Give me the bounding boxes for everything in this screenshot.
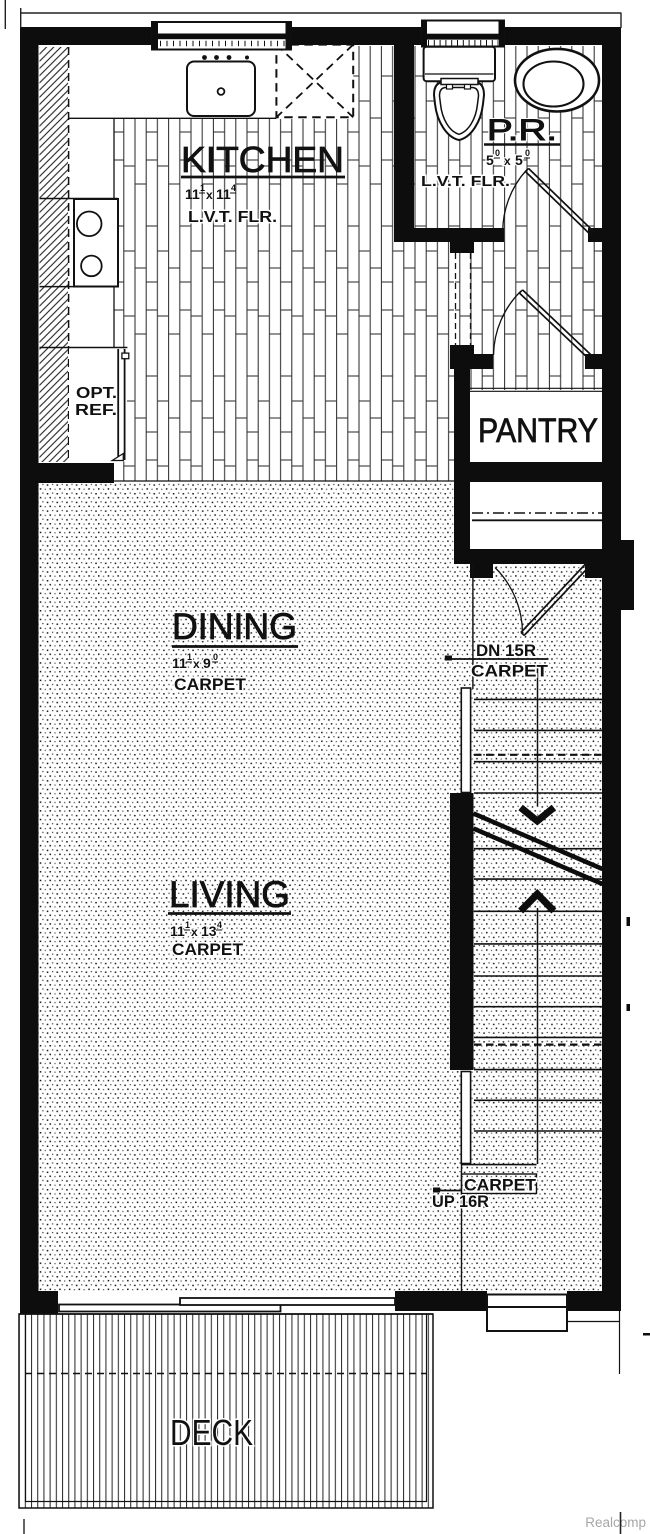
svg-text:x: x: [193, 657, 200, 671]
svg-text:1: 1: [187, 652, 192, 662]
svg-text:DINING: DINING: [172, 606, 297, 647]
svg-text:CARPET: CARPET: [464, 1177, 536, 1195]
svg-text:CARPET: CARPET: [172, 940, 244, 959]
svg-text:5: 5: [515, 152, 523, 168]
svg-text:REF.: REF.: [75, 402, 117, 419]
svg-text:CARPET: CARPET: [471, 662, 549, 681]
svg-text:LIVING: LIVING: [169, 874, 290, 915]
svg-text:0: 0: [495, 148, 500, 158]
svg-text:KITCHEN: KITCHEN: [181, 139, 344, 180]
svg-text:Realcomp: Realcomp: [585, 1515, 646, 1530]
svg-text:11: 11: [185, 186, 200, 202]
svg-text:11: 11: [216, 186, 231, 202]
svg-text:4: 4: [217, 920, 222, 930]
svg-text:L.V.T. FLR.: L.V.T. FLR.: [421, 173, 510, 190]
svg-text:11: 11: [170, 923, 185, 939]
svg-text:PANTRY: PANTRY: [478, 412, 598, 450]
svg-text:11: 11: [172, 655, 187, 671]
svg-text:P.R.: P.R.: [487, 114, 557, 147]
svg-text:UP 16R: UP 16R: [432, 1193, 489, 1211]
svg-text:L.V.T. FLR.: L.V.T. FLR.: [188, 209, 277, 226]
svg-text:1: 1: [200, 183, 205, 193]
svg-text:13: 13: [201, 923, 217, 939]
svg-text:CARPET: CARPET: [174, 675, 247, 694]
svg-text:x: x: [206, 188, 213, 202]
svg-text:DECK: DECK: [170, 1412, 253, 1453]
svg-text:0: 0: [213, 652, 218, 662]
svg-text:DN 15R: DN 15R: [476, 642, 536, 660]
svg-text:5: 5: [486, 152, 494, 168]
svg-text:9: 9: [203, 655, 211, 671]
svg-text:x: x: [191, 925, 198, 939]
svg-text:OPT.: OPT.: [76, 385, 117, 402]
svg-text:4: 4: [231, 183, 236, 193]
svg-text:x: x: [504, 154, 511, 168]
svg-text:0: 0: [525, 148, 530, 158]
svg-text:1: 1: [185, 920, 190, 930]
